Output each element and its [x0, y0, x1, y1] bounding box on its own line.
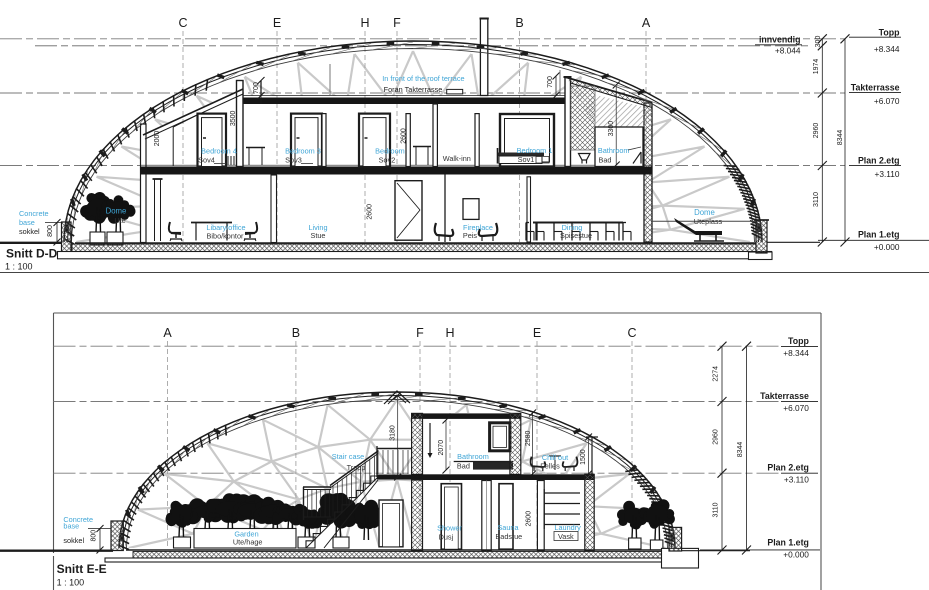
svg-text:3500: 3500 [230, 111, 237, 127]
svg-text:In front of the roof terrace: In front of the roof terrace [382, 74, 464, 83]
svg-text:sokkel: sokkel [63, 536, 84, 545]
svg-text:3110: 3110 [813, 192, 820, 207]
svg-text:H: H [445, 326, 454, 340]
svg-text:Sov1: Sov1 [518, 155, 535, 164]
svg-text:3300: 3300 [608, 121, 615, 137]
svg-text:8344: 8344 [837, 130, 844, 146]
svg-text:+0.000: +0.000 [783, 550, 809, 560]
svg-text:Dusj: Dusj [439, 533, 454, 542]
svg-text:base: base [19, 218, 35, 227]
svg-text:800: 800 [47, 225, 54, 237]
svg-text:A: A [163, 326, 172, 340]
svg-text:Bibo/kontor: Bibo/kontor [207, 231, 244, 240]
svg-text:Stair case: Stair case [332, 452, 364, 461]
svg-text:1 : 100: 1 : 100 [5, 262, 33, 272]
svg-text:2070: 2070 [438, 440, 445, 456]
svg-text:3110: 3110 [713, 502, 720, 517]
svg-text:Bad: Bad [599, 155, 612, 164]
svg-text:+8.044: +8.044 [775, 45, 801, 55]
svg-text:Bedroom 3: Bedroom 3 [285, 147, 321, 156]
svg-text:Topp: Topp [879, 27, 900, 37]
svg-text:sokkel: sokkel [19, 227, 40, 236]
svg-text:Stue: Stue [310, 231, 325, 240]
svg-text:F: F [416, 326, 424, 340]
svg-text:Topp: Topp [788, 336, 809, 346]
svg-text:Ute: Ute [114, 216, 125, 225]
svg-text:Vask: Vask [558, 532, 574, 541]
svg-text:innvendig: innvendig [759, 35, 801, 45]
svg-text:Sov3: Sov3 [285, 155, 302, 164]
svg-text:Felles: Felles [540, 462, 560, 471]
svg-text:Bad: Bad [457, 462, 470, 471]
svg-text:Bathroom: Bathroom [457, 452, 489, 461]
svg-text:Dome: Dome [106, 207, 127, 216]
svg-text:+8.344: +8.344 [783, 348, 809, 358]
svg-text:F: F [393, 16, 401, 30]
svg-text:C: C [627, 326, 636, 340]
svg-text:Walk-inn: Walk-inn [443, 154, 471, 163]
svg-text:Takterrasse: Takterrasse [760, 391, 809, 401]
svg-text:Bathroom: Bathroom [598, 146, 630, 155]
svg-text:Concrete: Concrete [19, 209, 49, 218]
svg-text:2600: 2600 [526, 511, 533, 527]
svg-text:+6.070: +6.070 [783, 403, 809, 413]
svg-text:2580: 2580 [525, 431, 532, 447]
svg-text:E: E [273, 16, 281, 30]
svg-text:Sov2: Sov2 [379, 155, 396, 164]
svg-text:8344: 8344 [737, 442, 744, 458]
svg-text:1974: 1974 [813, 59, 820, 75]
svg-text:300: 300 [815, 36, 822, 48]
svg-text:700: 700 [253, 82, 260, 94]
svg-text:Plan 2.etg: Plan 2.etg [767, 463, 809, 473]
svg-text:+6.070: +6.070 [874, 96, 900, 106]
svg-text:Bedroom 4: Bedroom 4 [201, 147, 237, 156]
svg-text:B: B [515, 16, 523, 30]
svg-text:B: B [292, 326, 300, 340]
svg-text:Sauna: Sauna [497, 523, 519, 532]
svg-text:Laundry: Laundry [554, 523, 581, 532]
svg-text:700: 700 [547, 76, 554, 88]
svg-text:3180: 3180 [390, 425, 397, 441]
svg-text:Uteplass: Uteplass [694, 217, 723, 226]
svg-text:2000: 2000 [154, 131, 161, 147]
svg-text:Peis: Peis [463, 231, 478, 240]
svg-text:+0.000: +0.000 [874, 242, 900, 252]
svg-text:Trapp: Trapp [347, 463, 366, 472]
svg-text:+8.344: +8.344 [874, 44, 900, 54]
svg-text:Sov4: Sov4 [198, 155, 215, 164]
svg-text:Takterrasse: Takterrasse [851, 83, 900, 93]
svg-text:2274: 2274 [713, 366, 720, 382]
svg-text:H: H [360, 16, 369, 30]
svg-text:+3.110: +3.110 [784, 475, 809, 485]
svg-text:E: E [533, 326, 541, 340]
svg-text:Spisestue: Spisestue [560, 231, 592, 240]
svg-text:Bedroom 1: Bedroom 1 [517, 146, 553, 155]
svg-text:Shower: Shower [437, 524, 462, 533]
svg-text:2960: 2960 [713, 429, 720, 445]
svg-text:Snitt E-E: Snitt E-E [57, 562, 107, 576]
svg-text:Ute/hage: Ute/hage [233, 538, 263, 547]
svg-text:Plan 2.etg: Plan 2.etg [858, 155, 900, 165]
svg-text:A: A [642, 16, 651, 30]
svg-text:Plan 1.etg: Plan 1.etg [858, 229, 900, 239]
svg-text:1 : 100: 1 : 100 [57, 578, 85, 588]
svg-text:2960: 2960 [813, 123, 820, 139]
svg-text:C: C [178, 16, 187, 30]
svg-text:Foran Takterrasse: Foran Takterrasse [384, 85, 443, 94]
svg-text:1500: 1500 [580, 449, 587, 465]
svg-text:+3.110: +3.110 [875, 169, 900, 179]
svg-text:Plan 1.etg: Plan 1.etg [767, 538, 809, 548]
svg-text:base: base [63, 522, 79, 531]
svg-text:Snitt D-D: Snitt D-D [6, 247, 58, 261]
svg-text:Badstue: Badstue [495, 532, 522, 541]
svg-text:2600: 2600 [367, 204, 374, 220]
svg-text:Dome: Dome [694, 208, 715, 217]
